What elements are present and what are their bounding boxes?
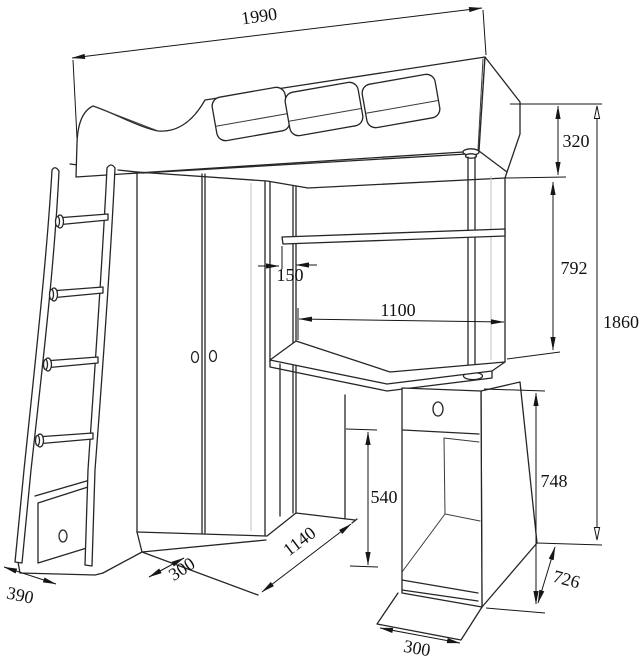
dim-line-side-depth (538, 547, 555, 603)
dim-label-overall-width: 1990 (240, 4, 278, 29)
dim-label-pedestal-height: 748 (541, 471, 568, 491)
ladder-cabinet-handle (59, 530, 67, 542)
pedestal-front-face (402, 388, 482, 607)
drawing-canvas: 1990 320 792 1860 150 1100 540 748 726 1… (0, 0, 641, 660)
loft-bed-rail (76, 57, 520, 177)
pedestal-cabinet (345, 382, 537, 640)
bed-side-face (479, 57, 520, 172)
dim-label-rail-height: 320 (563, 131, 590, 151)
dim-label-desk-length: 1100 (380, 300, 415, 320)
dim-label-under-bed-clearance: 792 (561, 258, 588, 278)
dim-label-overall-height: 1860 (603, 312, 639, 332)
dim-label-opening-height: 540 (371, 487, 398, 507)
dim-label-floor-front-depth: 1140 (279, 523, 319, 560)
dim-label-ladder-depth: 390 (5, 583, 36, 608)
dim-label-shelf-inset: 150 (277, 265, 304, 285)
support-pole (463, 149, 483, 380)
ladder (15, 165, 115, 566)
dim-label-pedestal-width: 300 (402, 636, 432, 660)
ladder-rail-right (85, 165, 115, 566)
ladder-rung-1 (56, 214, 109, 228)
wardrobe-handle-right (210, 351, 217, 362)
floor-edges (103, 519, 357, 595)
ladder-rung-4 (36, 433, 94, 447)
dim-line-ladder-depth (4, 567, 56, 584)
dim-label-wardrobe-depth: 300 (165, 553, 199, 584)
ladder-rung-2 (50, 287, 104, 301)
furniture-dimension-drawing: 1990 320 792 1860 150 1100 540 748 726 1… (0, 0, 641, 660)
dim-label-side-depth: 726 (551, 566, 582, 592)
pedestal-side-face (481, 382, 537, 607)
ladder-rung-3 (44, 357, 99, 371)
wall-shelf (282, 229, 505, 244)
corner-desk (270, 341, 505, 391)
wardrobe-handle-left (192, 352, 199, 363)
